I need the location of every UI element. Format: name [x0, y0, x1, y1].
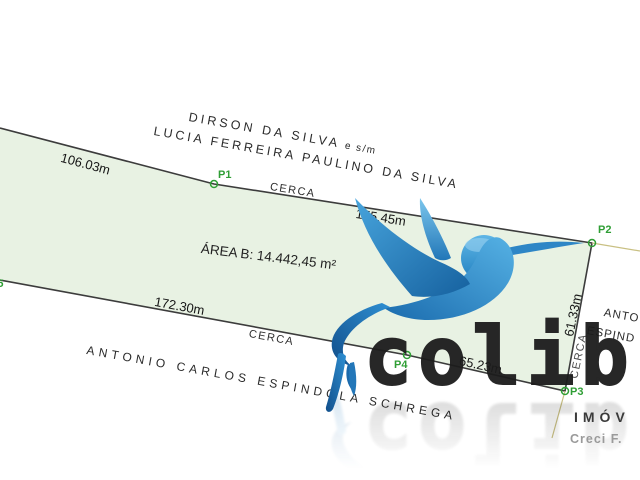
point-label-p1: P1: [218, 169, 231, 181]
point-label-p2: P2: [598, 224, 611, 236]
point-label-p5: P5: [0, 278, 3, 290]
survey-plot-page: { "north_owner": { "line1": "DIRSON DA S…: [0, 0, 640, 480]
brand-word-imoveis: IMÓV: [574, 409, 630, 425]
fence-label-east: CERCA: [579, 352, 625, 370]
point-label-p4: P4: [394, 359, 407, 371]
brand-creci: Creci F.: [570, 432, 622, 446]
point-label-p3: P3: [570, 386, 583, 398]
extension-line-p3: [552, 391, 565, 438]
extension-line-p2: [592, 243, 640, 251]
survey-plan-drawing: [0, 0, 640, 480]
